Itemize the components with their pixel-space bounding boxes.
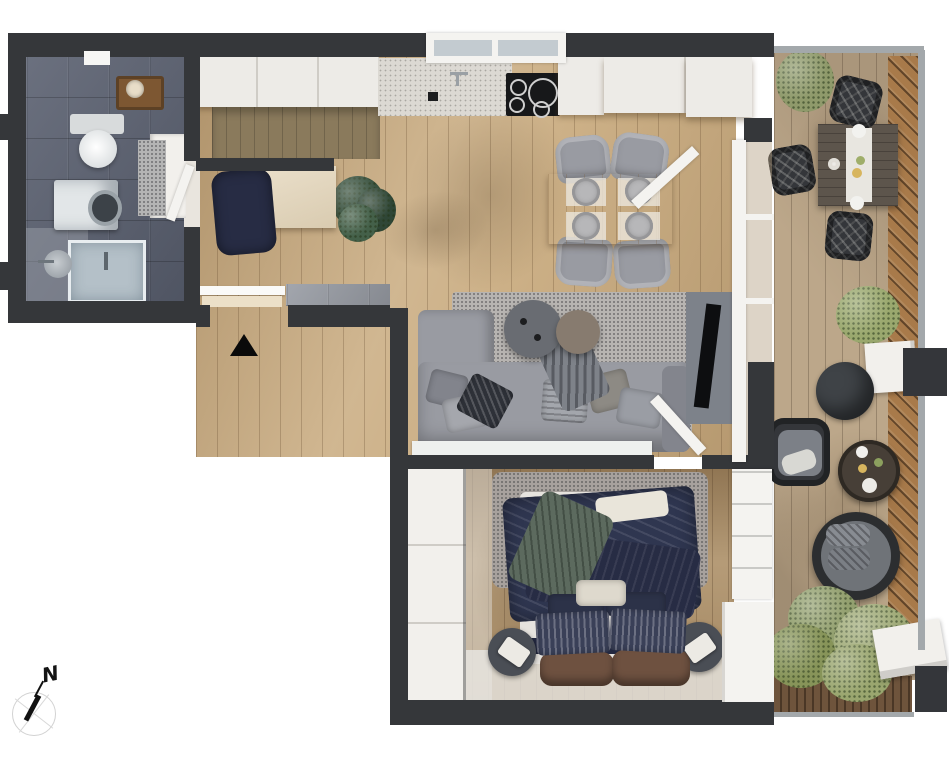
kitchen-cabinets-left [197,57,379,107]
cooktop-burner-small-2 [509,97,525,113]
terrace-bush-mid [836,286,900,344]
cooktop-burner-small-3 [533,101,550,118]
terrace-black-box-mid [903,348,947,396]
wall-entry-bottom-right [288,305,390,327]
kitchen-faucet-stem [456,72,459,86]
kitchen-upper-cabinet-1 [604,57,686,113]
terrace-bush-top [776,50,834,112]
bed-pillow-striped-left [535,610,611,656]
round-table-cup [856,446,868,458]
wall-top-right [562,33,774,57]
wall-entry-bottom-left [196,305,210,327]
coffee-table-small [556,310,600,354]
coffee-table-dot-2 [534,334,541,341]
toilet-bowl [79,130,117,168]
terrace-table-bowl-green [856,156,865,165]
round-table-item-green [874,458,883,467]
entry-door-leaf [199,286,285,295]
kitchen-window-pane-2 [498,40,558,56]
terrace-coffee-cup [828,158,840,170]
terrace-rail-top [774,46,924,53]
kitchen-counter-wood [212,107,380,159]
entry-floor [286,284,390,306]
monstera-plant-leaves-3 [338,204,378,242]
kitchen-upper-cabinet-2 [686,57,752,117]
plate-3 [572,212,600,240]
kitchen-counter-white [558,57,604,115]
wall-bathroom-right-lower [184,227,200,303]
terrace-table-plate-bottom [850,196,864,210]
wall-desk-nook [196,158,334,171]
round-table-plate [862,478,877,493]
kitchen-sink-drain [428,92,438,101]
terrace-glass-mullion-1 [744,214,774,220]
terrace-rail-bottom [772,712,914,717]
terrace-glass-mullion-2 [744,298,774,304]
shower-handle [104,252,108,270]
bedroom-window-upper [732,469,772,599]
desk-chair [210,168,277,257]
wall-bathroom-right-upper [184,55,200,161]
entry-door-mat [202,296,282,307]
bathroom-wall-niche [84,51,110,65]
terrace-black-box-bottom [915,666,947,712]
terrace-pouf [816,362,874,420]
round-table-item-yellow [858,464,867,473]
kitchen-counter-stone [378,58,512,116]
kitchen-faucet [450,72,468,75]
wall-right-mid-segment [748,362,774,462]
wall-bump-lower [0,262,9,290]
entrance-triangle-marker [230,334,258,356]
bath-mat [138,140,166,216]
shelf-basket [126,80,144,98]
terrace-chair-left [766,143,818,198]
kitchen-window-pane-1 [434,40,492,56]
plate-1 [572,178,600,206]
wall-living-left [390,308,408,722]
terrace-table-bowl-yellow [852,168,862,178]
wall-top-main [8,33,432,57]
basin-faucet [38,260,54,263]
washing-machine-door [88,190,122,226]
hand-basin [44,250,72,278]
wall-pillar-balcony-door [744,118,772,142]
coffee-table-dot-1 [520,318,527,325]
dining-chair-bottom-right [612,238,671,290]
north-label: N [40,661,61,688]
cooktop-burner-small-1 [510,79,527,96]
bed-bench-left [540,652,614,686]
compass: N [6,662,76,742]
shower [68,240,146,303]
terrace-table-runner [846,128,872,202]
wall-divider-left [408,455,654,469]
bed-pillow-white [576,580,626,606]
wall-bathroom-left [8,33,26,323]
egg-chair-cushion [826,524,870,546]
bed-pillow-striped-right [609,608,687,654]
wall-bump-upper [0,114,9,140]
bedroom-window-sill [722,602,774,702]
wall-bottom [390,700,774,725]
bed-bench-right [612,650,690,686]
wall-bathroom-bottom [8,301,200,323]
egg-chair-cushion-2 [828,548,870,570]
floor-plan: N [0,0,949,757]
terrace-chair-bottom [824,210,875,263]
terrace-table-plate-top [852,124,866,138]
wardrobe [408,468,466,700]
coffee-table-large [504,300,562,358]
plate-4 [625,212,653,240]
